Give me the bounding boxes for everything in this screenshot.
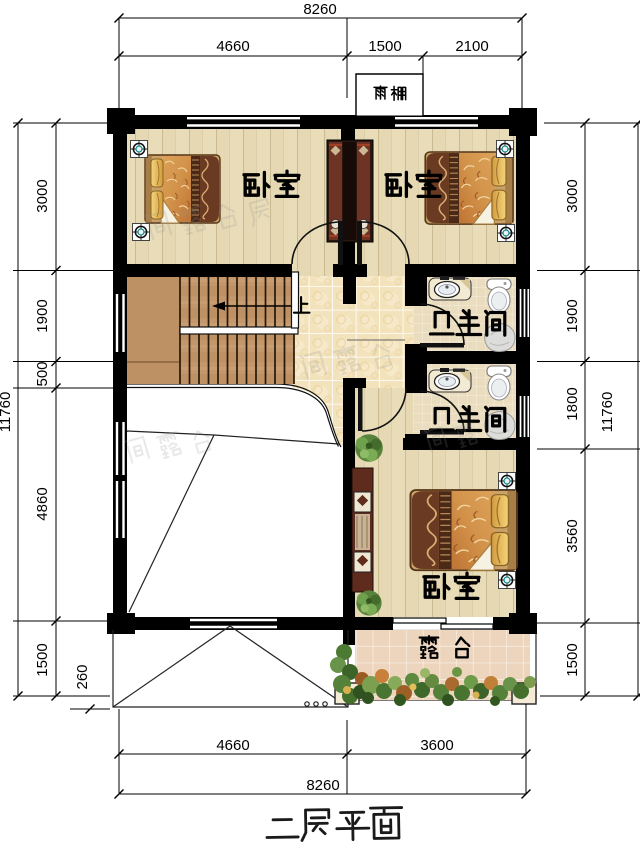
svg-text:1500: 1500	[564, 643, 581, 676]
svg-text:3600: 3600	[420, 737, 453, 754]
svg-text:1500: 1500	[368, 38, 401, 55]
svg-text:4860: 4860	[34, 487, 51, 520]
svg-text:8260: 8260	[303, 1, 336, 18]
svg-text:11760: 11760	[0, 392, 14, 433]
svg-text:3560: 3560	[564, 519, 581, 552]
svg-text:1800: 1800	[564, 387, 581, 420]
svg-text:3000: 3000	[34, 179, 51, 212]
svg-text:4660: 4660	[216, 38, 249, 55]
svg-text:260: 260	[74, 664, 91, 689]
svg-text:1900: 1900	[34, 299, 51, 332]
svg-text:4660: 4660	[216, 737, 249, 754]
svg-text:500: 500	[34, 361, 51, 386]
svg-text:11760: 11760	[599, 392, 616, 433]
svg-text:1500: 1500	[34, 643, 51, 676]
svg-text:2100: 2100	[455, 38, 488, 55]
svg-text:3000: 3000	[564, 179, 581, 212]
svg-text:8260: 8260	[306, 777, 339, 794]
svg-text:1900: 1900	[564, 299, 581, 332]
